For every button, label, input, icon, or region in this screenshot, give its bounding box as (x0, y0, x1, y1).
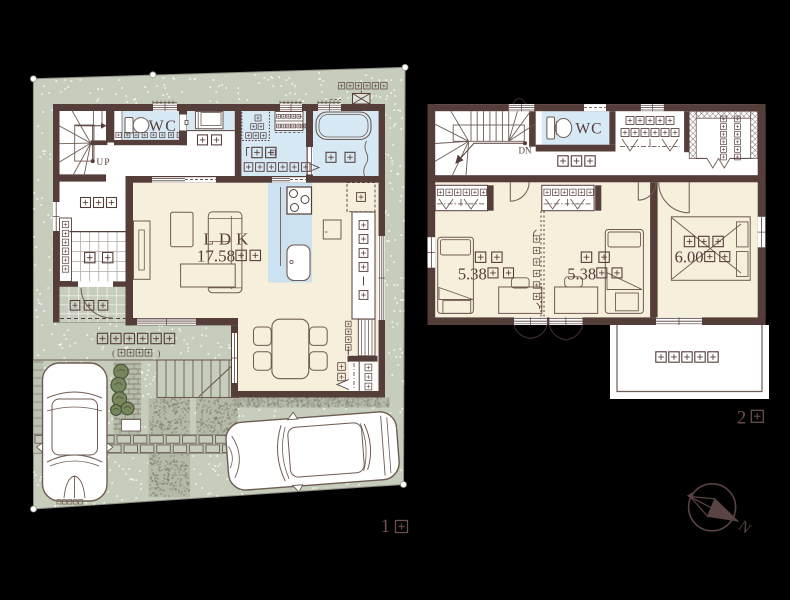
svg-text:(: ( (112, 348, 115, 358)
svg-text:DN: DN (519, 146, 532, 156)
svg-text:): ) (158, 348, 161, 358)
svg-text:WC: WC (576, 121, 603, 138)
svg-text:1: 1 (381, 516, 391, 537)
svg-text:5.38: 5.38 (458, 264, 487, 283)
svg-text:6.00: 6.00 (675, 248, 704, 267)
svg-text:UP: UP (96, 158, 110, 168)
svg-text:5.38: 5.38 (567, 264, 596, 283)
svg-text:17.58: 17.58 (197, 247, 235, 266)
svg-text:2: 2 (737, 408, 747, 429)
